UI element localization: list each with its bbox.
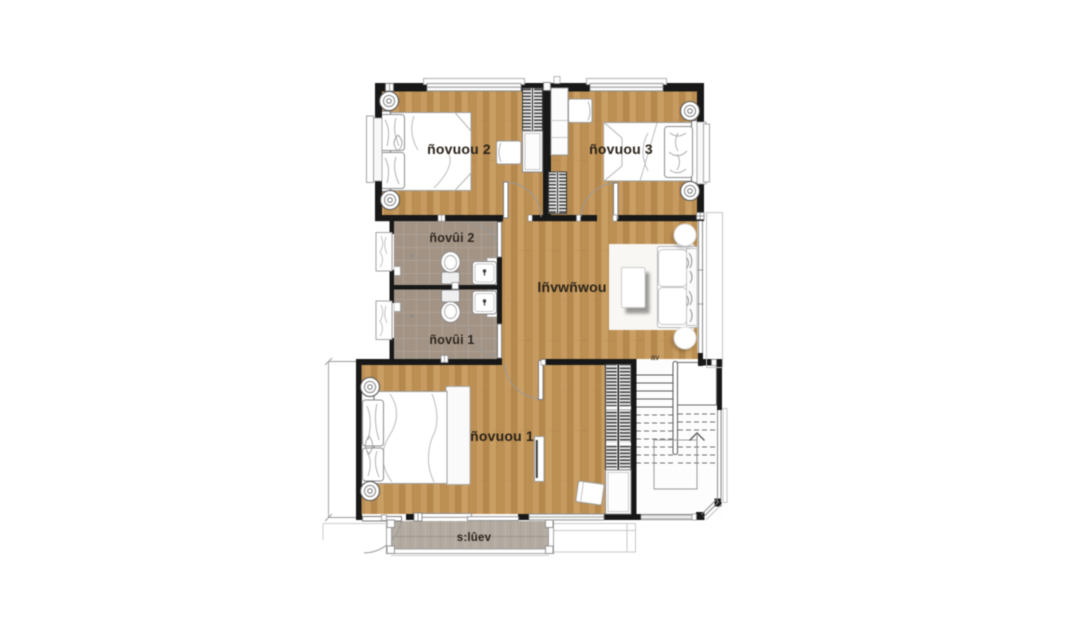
svg-text:s:lûev: s:lûev <box>457 532 492 544</box>
svg-text:ñovuou 1: ñovuou 1 <box>470 428 534 444</box>
svg-text:ñovûi 2: ñovûi 2 <box>429 231 474 245</box>
svg-text:ñovuou 2: ñovuou 2 <box>427 141 491 157</box>
svg-text:ñovuou 3: ñovuou 3 <box>589 141 653 157</box>
svg-text:lñvwñwou: lñvwñwou <box>537 279 606 295</box>
svg-text:ñovûi 1: ñovûi 1 <box>429 333 474 347</box>
svg-text:av: av <box>651 353 659 362</box>
